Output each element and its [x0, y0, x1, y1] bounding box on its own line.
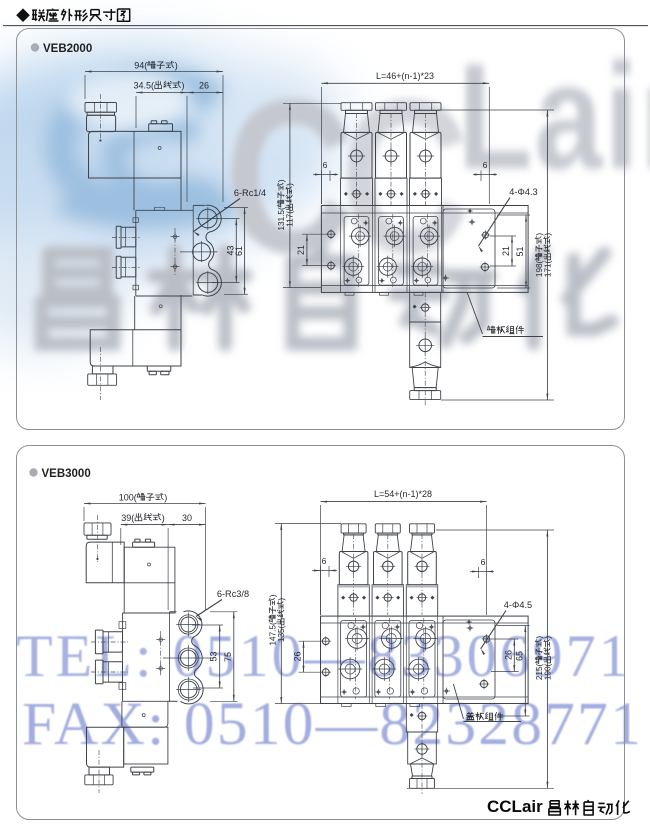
svg-text:94(: 94( — [134, 61, 147, 71]
svg-text:6: 6 — [322, 556, 327, 566]
svg-text:6-Rc3/8: 6-Rc3/8 — [217, 589, 249, 599]
svg-text:L=46+(n-1)*23: L=46+(n-1)*23 — [376, 71, 434, 81]
svg-text:30: 30 — [182, 513, 192, 523]
svg-text:4-: 4- — [509, 187, 517, 197]
svg-text:6-Rc1/4: 6-Rc1/4 — [234, 188, 266, 198]
svg-text:): ) — [544, 636, 553, 639]
svg-text:26: 26 — [199, 81, 209, 91]
svg-text:21: 21 — [501, 246, 511, 256]
svg-text:): ) — [182, 81, 185, 91]
svg-text:): ) — [175, 61, 178, 71]
svg-text:Φ4.3: Φ4.3 — [518, 187, 538, 197]
svg-text:100(: 100( — [119, 493, 137, 503]
svg-text:34.5(: 34.5( — [134, 81, 155, 91]
svg-text:75: 75 — [223, 652, 233, 662]
svg-text:51: 51 — [515, 246, 525, 256]
svg-text:171(: 171( — [544, 260, 553, 277]
svg-text:Φ4.5: Φ4.5 — [512, 600, 532, 610]
svg-text:61: 61 — [234, 246, 244, 256]
svg-text:190(: 190( — [544, 663, 553, 680]
svg-text:): ) — [269, 594, 278, 597]
svg-text:): ) — [277, 598, 286, 601]
svg-text:): ) — [544, 233, 553, 236]
svg-text:6: 6 — [323, 160, 328, 170]
svg-text:VEB3000: VEB3000 — [42, 468, 91, 480]
svg-text:): ) — [277, 179, 286, 182]
svg-text:39(: 39( — [121, 513, 134, 523]
svg-text:4-: 4- — [504, 600, 512, 610]
svg-text:21: 21 — [296, 245, 306, 255]
svg-text:CCLair: CCLair — [487, 797, 543, 816]
svg-text:26: 26 — [293, 651, 303, 661]
svg-text:135(: 135( — [277, 625, 286, 642]
svg-text:117(: 117( — [286, 211, 295, 227]
svg-text:VEB2000: VEB2000 — [43, 43, 92, 55]
svg-text:6: 6 — [483, 160, 488, 170]
svg-text:26: 26 — [503, 650, 513, 660]
svg-text:): ) — [162, 513, 165, 523]
svg-text:): ) — [164, 493, 167, 503]
svg-text:L=54+(n-1)*28: L=54+(n-1)*28 — [374, 489, 432, 499]
svg-text:65: 65 — [514, 651, 524, 661]
svg-text:6: 6 — [481, 557, 486, 567]
svg-text:53: 53 — [209, 651, 219, 661]
svg-text:): ) — [286, 183, 295, 186]
